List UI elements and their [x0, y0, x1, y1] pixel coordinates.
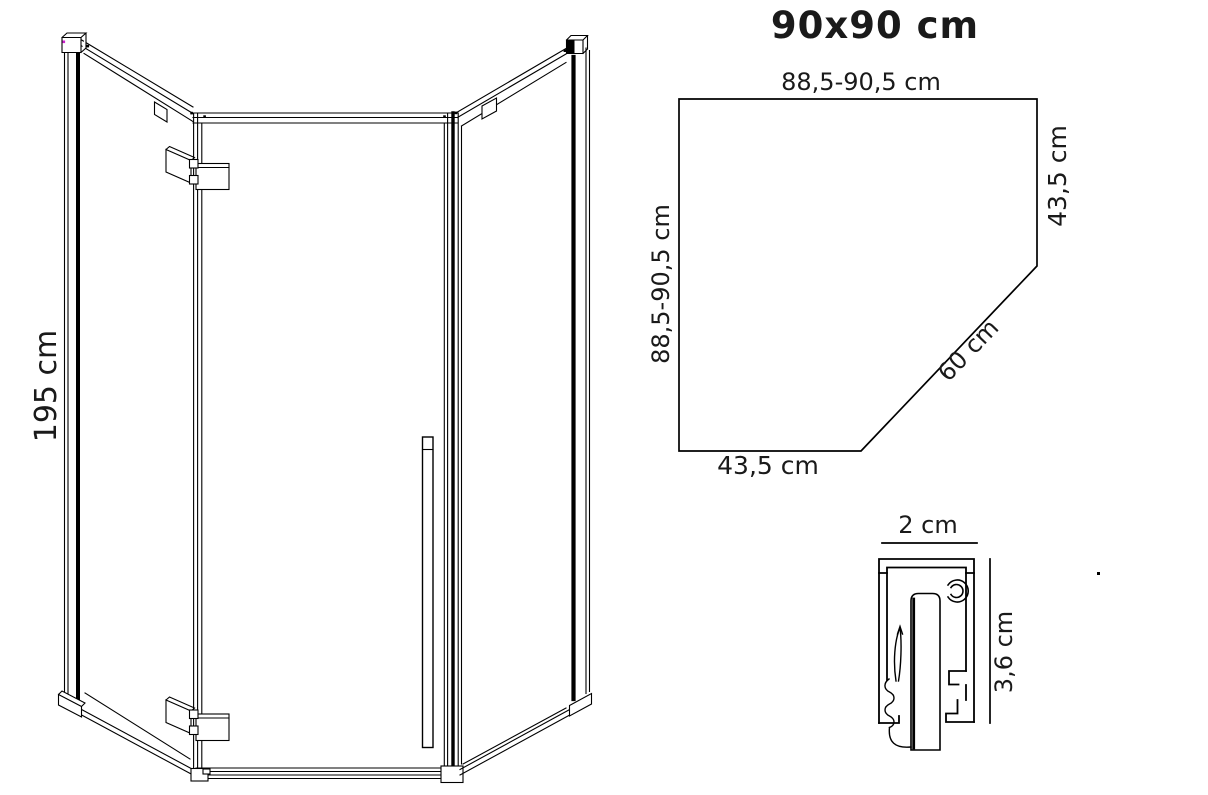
right-side-panel	[458, 36, 592, 776]
profile-left-foot	[879, 716, 899, 723]
profile-height-label: 3,6 cm	[991, 552, 1019, 752]
left-wall-bracket-hook	[155, 102, 168, 122]
door-hinge-post	[194, 113, 198, 769]
pentagon-outline	[679, 99, 1037, 451]
seal-lip	[894, 628, 901, 682]
profile-wall-notch	[949, 671, 966, 685]
front-3d-view	[59, 33, 592, 783]
left-panel-outer-edge	[65, 42, 69, 697]
door-bottom-right-block	[441, 766, 463, 783]
door-panel	[87, 45, 567, 783]
profile-width-label: 2 cm	[858, 512, 998, 540]
plan-top-width-label: 88,5-90,5 cm	[711, 69, 1011, 97]
enclosure-height-label: 195 cm	[30, 286, 62, 486]
plan-view	[679, 99, 1037, 451]
right-wall-bracket-hook	[482, 98, 497, 119]
plan-right-side-label: 43,5 cm	[1044, 76, 1072, 276]
plan-bottom-side-label: 43,5 cm	[668, 452, 868, 480]
left-panel-top-rail	[80, 39, 193, 122]
bottom-left-corner-block	[59, 691, 86, 717]
right-panel-top-rail	[458, 49, 567, 127]
technical-line-art	[0, 0, 1208, 795]
stray-dot	[1097, 572, 1100, 575]
glass-panel-section	[911, 594, 940, 751]
top-left-corner-block	[62, 33, 86, 53]
plan-left-depth-label: 88,5-90,5 cm	[648, 184, 676, 384]
top-right-corner-block	[567, 36, 588, 54]
door-handle[interactable]	[423, 437, 434, 748]
door-bottom-rail	[193, 768, 460, 779]
plan-title: 90x90 cm	[725, 6, 1025, 48]
diagram-page: 90x90 cm 88,5-90,5 cm 88,5-90,5 cm 43,5 …	[0, 0, 1208, 795]
profile-top-cap	[879, 559, 974, 573]
door-top-rail	[193, 113, 458, 123]
bottom-seal-gasket	[885, 627, 911, 748]
right-panel-outer-edge	[586, 48, 590, 694]
left-side-panel	[59, 33, 194, 775]
profile-right-foot	[946, 700, 974, 722]
right-panel-bottom-rail	[460, 700, 588, 776]
corner-cap-artifact	[63, 41, 66, 44]
profile-left-wall	[879, 573, 887, 723]
door-bottom-left-tab	[203, 769, 210, 774]
